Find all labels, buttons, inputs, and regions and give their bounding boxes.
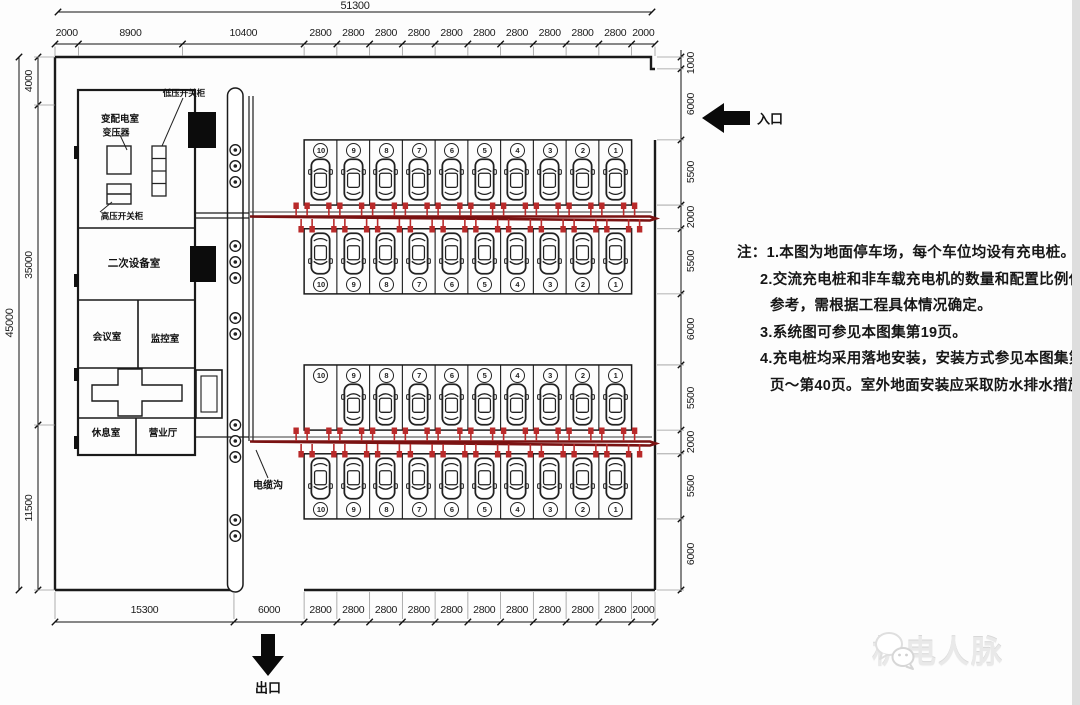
- car-icon: [472, 157, 497, 202]
- stall-number: 7: [412, 143, 427, 158]
- car-icon: [537, 456, 562, 501]
- dim-label: 2800: [342, 604, 364, 616]
- dim-label: 4000: [23, 70, 35, 92]
- dim-label: 2800: [506, 27, 528, 39]
- charging-pile-icon: [424, 428, 429, 435]
- car-icon: [603, 157, 628, 202]
- stall-number: 1: [608, 277, 623, 292]
- room-label-monitoring: 监控室: [151, 331, 180, 345]
- room-label-rest: 休息室: [92, 425, 121, 439]
- car-icon: [472, 382, 497, 427]
- charging-pile-icon: [490, 428, 495, 435]
- dim-top-total: 51300: [340, 0, 369, 12]
- car-icon: [570, 231, 595, 276]
- car-icon: [373, 231, 398, 276]
- charging-pile-icon: [304, 203, 309, 210]
- charging-pile-icon: [403, 203, 408, 210]
- charging-pile-icon: [457, 203, 462, 210]
- canopy-column-dot: [234, 164, 238, 168]
- charging-pile-icon: [555, 428, 560, 435]
- charging-pile-icon: [637, 451, 642, 458]
- entrance-label: 入口: [757, 109, 783, 128]
- note-line: 3.系统图可参见本图集第19页。: [737, 320, 1080, 347]
- car-icon: [439, 231, 464, 276]
- charging-pile-icon: [435, 203, 440, 210]
- dim-label: 2800: [571, 27, 593, 39]
- dim-label: 2000: [632, 27, 654, 39]
- charging-pile-icon: [599, 203, 604, 210]
- charging-pile-icon: [588, 203, 593, 210]
- dim-label: 2800: [604, 604, 626, 616]
- charging-pile-icon: [392, 428, 397, 435]
- car-icon: [341, 231, 366, 276]
- charging-pile-icon: [293, 203, 298, 210]
- charging-pile-icon: [359, 428, 364, 435]
- dim-label: 2800: [440, 604, 462, 616]
- charging-pile-icon: [359, 203, 364, 210]
- car-icon: [603, 382, 628, 427]
- car-icon: [373, 157, 398, 202]
- charging-pile-icon: [326, 203, 331, 210]
- charging-pile-icon: [435, 428, 440, 435]
- notes-block: 注：1.本图为地面停车场，每个车位均设有充电桩。2.交流充电桩和非车载充电机的数…: [737, 240, 1080, 399]
- stall-number: 4: [510, 502, 525, 517]
- car-icon: [570, 456, 595, 501]
- cable-trench-label: 电缆沟: [253, 477, 283, 492]
- stall-number: 7: [412, 277, 427, 292]
- canopy-column-dot: [234, 148, 238, 152]
- dim-label: 5500: [685, 250, 697, 272]
- car-icon: [570, 157, 595, 202]
- dim-label: 2000: [56, 27, 78, 39]
- note-line: 参考，需根据工程具体情况确定。: [737, 293, 1080, 320]
- charging-pile-icon: [326, 428, 331, 435]
- car-icon: [603, 456, 628, 501]
- stall-number: 8: [379, 502, 394, 517]
- dim-label: 2800: [342, 27, 364, 39]
- dim-label: 2800: [604, 27, 626, 39]
- dim-label: 2800: [571, 604, 593, 616]
- note-line: 注：1.本图为地面停车场，每个车位均设有充电桩。: [737, 240, 1080, 267]
- stall-number: 7: [412, 368, 427, 383]
- dim-label: 2800: [309, 604, 331, 616]
- dim-left-total: 45000: [4, 308, 16, 337]
- charging-pile-icon: [566, 428, 571, 435]
- room-label-secondary: 二次设备室: [108, 256, 161, 271]
- car-icon: [406, 382, 431, 427]
- room-label-power-dist: 变配电室: [101, 111, 139, 125]
- dim-label: 8900: [119, 27, 141, 39]
- car-icon: [537, 157, 562, 202]
- car-icon: [439, 456, 464, 501]
- dim-label: 2800: [539, 604, 561, 616]
- charging-pile-icon: [523, 203, 528, 210]
- car-icon: [603, 231, 628, 276]
- dim-label: 2000: [685, 431, 697, 453]
- note-line: 页～第40页。室外地面安装应采取防水排水措施。: [737, 373, 1080, 400]
- car-icon: [406, 157, 431, 202]
- charging-pile-icon: [468, 428, 473, 435]
- car-icon: [570, 382, 595, 427]
- dim-label: 2800: [408, 604, 430, 616]
- dim-label: 35000: [23, 251, 35, 279]
- charging-pile-icon: [424, 203, 429, 210]
- note-line: 2.交流充电桩和非车载充电机的数量和配置比例仅为: [737, 267, 1080, 294]
- stall-number: 3: [543, 368, 558, 383]
- charging-pile-icon: [523, 428, 528, 435]
- charging-pile-icon: [588, 428, 593, 435]
- canopy-column-dot: [234, 518, 238, 522]
- car-icon: [504, 382, 529, 427]
- dim-label: 6000: [258, 604, 280, 616]
- canopy-column-dot: [234, 316, 238, 320]
- stall-number: 8: [379, 143, 394, 158]
- charging-pile-icon: [632, 428, 637, 435]
- charging-pile-icon: [468, 203, 473, 210]
- car-icon: [341, 456, 366, 501]
- dim-label: 2000: [685, 206, 697, 228]
- canopy-column-dot: [234, 455, 238, 459]
- dim-label: 15300: [131, 604, 159, 616]
- car-icon: [373, 382, 398, 427]
- car-icon: [504, 456, 529, 501]
- car-icon: [308, 456, 333, 501]
- car-icon: [537, 231, 562, 276]
- car-icon: [308, 157, 333, 202]
- car-icon: [537, 382, 562, 427]
- car-icon: [472, 231, 497, 276]
- charging-pile-icon: [337, 203, 342, 210]
- charging-pile-icon: [370, 203, 375, 210]
- right-edge-strip: [1072, 0, 1080, 705]
- charging-pile-icon: [621, 428, 626, 435]
- dim-label: 5500: [685, 386, 697, 408]
- charging-pile-icon: [534, 428, 539, 435]
- car-icon: [439, 382, 464, 427]
- charging-pile-icon: [293, 428, 298, 435]
- charging-pile-icon: [599, 428, 604, 435]
- charging-pile-icon: [490, 203, 495, 210]
- car-icon: [406, 231, 431, 276]
- charging-pile-icon: [337, 428, 342, 435]
- dim-label: 1000: [685, 52, 697, 74]
- charging-pile-icon: [637, 226, 642, 233]
- stall-number: 3: [543, 143, 558, 158]
- note-line: 4.充电桩均采用落地安装，安装方式参见本图集第39: [737, 346, 1080, 373]
- room-label-transformer: 变压器: [102, 126, 129, 139]
- stall-number: 4: [510, 143, 525, 158]
- charging-pile-icon: [392, 203, 397, 210]
- canopy-column-dot: [234, 439, 238, 443]
- canopy-column-dot: [234, 260, 238, 264]
- charging-pile-icon: [621, 203, 626, 210]
- charging-pile-icon: [632, 203, 637, 210]
- stall-number: 8: [379, 368, 394, 383]
- charging-pile-icon: [370, 428, 375, 435]
- charging-pile-icon: [566, 203, 571, 210]
- stall-number: 3: [543, 502, 558, 517]
- charging-pile-icon: [555, 203, 560, 210]
- charging-pile-icon: [501, 203, 506, 210]
- wechat-logo-icon: [872, 627, 920, 677]
- car-icon: [341, 157, 366, 202]
- charging-pile-icon: [501, 428, 506, 435]
- watermark: 机电人脉: [872, 627, 1004, 672]
- canopy-column-dot: [234, 244, 238, 248]
- stall-number: 7: [412, 502, 427, 517]
- dim-label: 5500: [685, 161, 697, 183]
- canopy-column-dot: [234, 276, 238, 280]
- car-icon: [504, 157, 529, 202]
- car-icon: [504, 231, 529, 276]
- charging-pile-icon: [298, 226, 303, 233]
- exit-label: 出口: [255, 678, 281, 697]
- car-icon: [406, 456, 431, 501]
- dim-label: 6000: [685, 93, 697, 115]
- dim-label: 6000: [685, 543, 697, 565]
- canopy-column-dot: [234, 332, 238, 336]
- dim-label: 2000: [632, 604, 654, 616]
- car-icon: [439, 157, 464, 202]
- stall-number: 4: [510, 277, 525, 292]
- dim-label: 2800: [375, 27, 397, 39]
- dim-label: 2800: [473, 27, 495, 39]
- room-label-lv-switchgear: 低压开关柜: [163, 87, 206, 99]
- dim-label: 2800: [440, 27, 462, 39]
- stall-number: 3: [543, 277, 558, 292]
- charging-pile-icon: [457, 428, 462, 435]
- stall-number: 8: [379, 277, 394, 292]
- charging-pile-icon: [298, 451, 303, 458]
- dim-label: 2800: [539, 27, 561, 39]
- car-icon: [341, 382, 366, 427]
- canopy-column-dot: [234, 423, 238, 427]
- dim-label: 2800: [408, 27, 430, 39]
- dim-label: 11500: [23, 494, 35, 521]
- canopy-column-dot: [234, 180, 238, 184]
- car-icon: [308, 231, 333, 276]
- room-label-meeting: 会议室: [93, 329, 122, 343]
- charging-pile-icon: [534, 203, 539, 210]
- charging-pile-icon: [403, 428, 408, 435]
- dim-label: 6000: [685, 318, 697, 340]
- room-label-business-hall: 营业厅: [149, 425, 178, 439]
- dim-label: 10400: [229, 27, 257, 39]
- dim-label: 2800: [506, 604, 528, 616]
- room-label-hv-switchgear: 高压开关柜: [101, 210, 144, 222]
- car-icon: [373, 456, 398, 501]
- car-icon: [472, 456, 497, 501]
- dim-label: 2800: [473, 604, 495, 616]
- stall-number: 4: [510, 368, 525, 383]
- canopy-column-dot: [234, 534, 238, 538]
- dim-label: 2800: [375, 604, 397, 616]
- charging-pile-icon: [304, 428, 309, 435]
- dim-label: 2800: [309, 27, 331, 39]
- site-plan-drawing: 低压开关柜 变配电室 变压器 高压开关柜 二次设备室 会议室 监控室 休息室 营…: [0, 0, 1080, 705]
- dim-label: 5500: [685, 475, 697, 497]
